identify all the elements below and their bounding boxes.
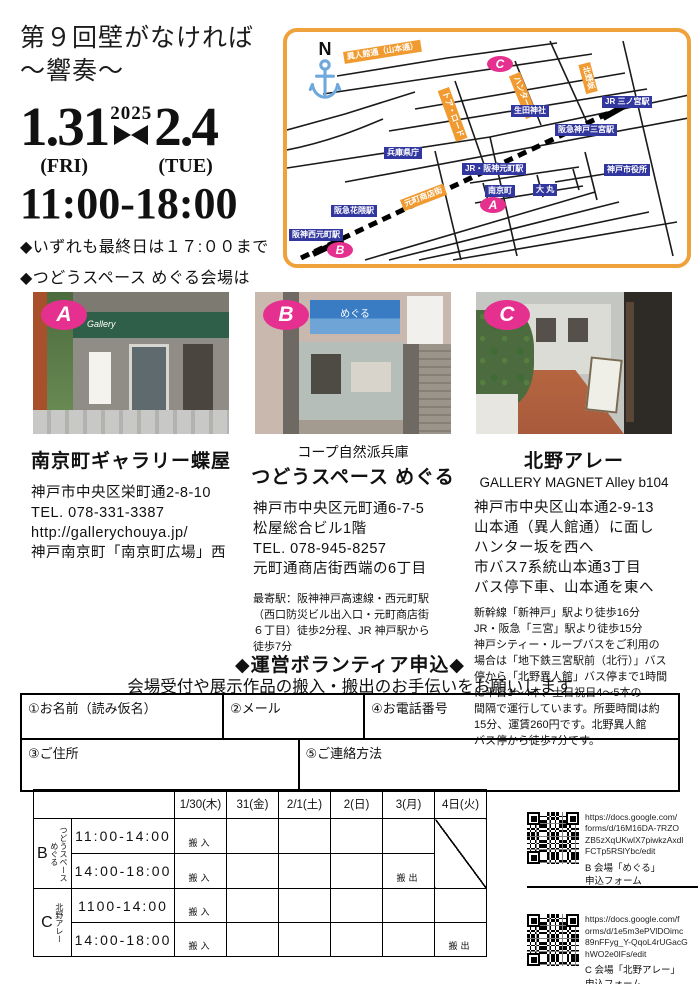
venue-photo-c: C [476,292,672,434]
qr-b-url-line: forms/d/16M16DA-7RZO [585,823,683,834]
schedule-cell [331,819,383,854]
schedule-cell: 搬出 [383,854,435,889]
schedule-cell [227,819,279,854]
map-label-ikuta-shrine: 生田神社 [511,105,549,117]
schedule-cell [331,854,383,889]
form-field-contact[interactable]: ⑤ご連絡方法 [298,740,678,790]
timeslot: 11:00-14:00 [72,819,175,854]
flyer-page: 第９回壁がなければ ～響奏～ 1.31 (FRI) 2025 2.4 (TUE)… [0,0,700,984]
date-start-weekday: (FRI) [20,155,108,178]
photo-c-sign-board [585,356,622,413]
bowtie-icon [114,125,148,145]
schedule-date: 2/1(土) [279,790,331,819]
venue-c-address-line: 山本通（異人館通）に面し [474,518,680,538]
title-block: 第９回壁がなければ ～響奏～ 1.31 (FRI) 2025 2.4 (TUE)… [20,22,278,314]
schedule-row-b1: B つどうスペースめぐる 11:00-14:00 搬入 [34,819,487,854]
venue-b-tel: TEL. 078-945-8257 [253,539,459,559]
venue-a-tel: TEL. 078-331-3387 [31,503,237,523]
schedule-date: 1/30(木) [175,790,227,819]
qr-c-caption-line: 申込フォーム [585,978,688,984]
venue-c-note-line: JR・阪急「三宮」駅より徒歩15分 [474,622,680,638]
row-label-letter-c: C [41,914,53,932]
venue-b-note-line: ６丁目）徒歩2分程、JR 神戸駅から [253,624,459,640]
venue-photo-a: Gallery A [33,292,229,434]
venue-b-name: つどうスペース めぐる [247,462,459,489]
map-label-hanshin-nishimotomachi: 阪神西元町駅 [289,229,343,241]
venue-b-row-label: B つどうスペースめぐる [34,819,72,889]
timeslot: 1100-14:00 [72,889,175,923]
map-label-hyogo-kencho: 兵庫県庁 [384,147,422,159]
row-label-vtext: めぐる [50,826,59,882]
date-end-weekday: (TUE) [154,155,217,178]
photo-b-shutter [419,344,451,434]
venue-c-address-line: 市バス7系統山本通3丁目 [474,558,680,578]
photo-b-step [299,420,403,434]
venue-b-address-line: 神戸市中央区元町通6-7-5 [253,499,459,519]
venue-c-address-line: 神戸市中央区山本通2-9-13 [474,498,680,518]
schedule-row-b2: 14:00-18:00 搬入 搬出 [34,854,487,889]
qr-b-caption-line: B 会場「めぐる」 [585,862,683,875]
event-title-line2: ～響奏～ [20,55,278,88]
schedule-cell-slash [435,819,487,889]
qr-b-url-line: FCTp5RSlYbc/edit [585,846,683,857]
photo-b-town-sign [407,296,443,344]
schedule-cell: 搬入 [175,819,227,854]
qr-divider-line [527,886,698,888]
qr-finder [527,851,540,864]
map-label-hankyu-hanakuma: 阪急花隈駅 [331,205,377,217]
qr-code-b-venue [527,812,579,864]
venue-c-name: 北野アレー [468,446,680,473]
date-end-block: 2.4 (TUE) [154,101,217,178]
schedule-cell [383,819,435,854]
form-field-email[interactable]: ②メール [222,695,363,738]
access-map: N 異人館通（山本通） ハンター坂 北野坂 トア・ロード 元町商店街 JR 三ノ… [283,28,691,268]
map-label-kobe-cityhall: 神戸市役所 [604,164,650,176]
date-start: 1.31 [20,96,108,157]
qr-column: https://docs.google.com/ forms/d/16M16DA… [527,812,699,984]
event-dates: 1.31 (FRI) 2025 2.4 (TUE) [20,101,278,178]
photo-b-sign-text: めぐる [340,309,370,320]
venue-photo-b: めぐる B [255,292,451,434]
map-label-jr-hanshin-motomachi: JR・阪神元町駅 [462,163,526,175]
schedule-date: 2(日) [331,790,383,819]
venue-c-row-label: C 北野アレー [34,889,72,957]
map-label-hankyu-kobe-sannomiya: 阪急神戸三宮駅 [555,124,617,136]
photo-a-side-opening [183,344,213,410]
event-hours: 11:00-18:00 [20,182,278,226]
form-field-address[interactable]: ③ご住所 [22,740,298,790]
map-marker-b: B [327,242,353,258]
event-title-line1: 第９回壁がなければ [20,22,278,55]
timeslot: 14:00-18:00 [72,854,175,889]
venue-c-note-line: 新幹線「新神戸」駅より徒歩16分 [474,606,680,622]
schedule-cell [227,854,279,889]
venue-b-note-line: （西口防災ビル出入口・元町商店街 [253,608,459,624]
form-row-1: ①お名前（読み仮名） ②メール ④お電話番号 [22,695,678,738]
schedule-cell: 搬入 [175,923,227,957]
qr-c-caption: C 会場「北野アレー」 申込フォーム [585,964,688,984]
note-meguru-1: ◆つどうスペース めぐる会場は [20,264,278,288]
venue-a-badge: A [41,300,87,330]
venue-b: めぐる B コープ自然派兵庫 つどうスペース めぐる 神戸市中央区元町通6-7-… [247,292,459,656]
schedule-cell [279,854,331,889]
photo-a-awning: Gallery [73,312,229,338]
photo-a-pavement [33,410,229,434]
map-label-jr-sannomiya: JR 三ノ宮駅 [602,96,652,108]
venue-c-address: 神戸市中央区山本通2-9-13 山本通（異人館通）に面し ハンター坂を西へ 市バ… [468,498,680,598]
qr-c-url-line: orms/d/1e5m3ePVlDOimc [585,926,688,937]
venue-b-address: 神戸市中央区元町通6-7-5 松屋総合ビル1階 TEL. 078-945-825… [247,499,459,579]
schedule-cell [383,923,435,957]
venue-b-access-note: 最寄駅：阪神神戸高速線・西元町駅 （西口防災ビル出入口・元町商店街 ６丁目）徒歩… [247,592,459,656]
schedule-cell [331,889,383,923]
venue-a-address-line: 神戸市中央区栄町通2-8-10 [31,483,237,503]
qr-c-url-line: hWO2e0IFs/edit [585,949,688,960]
venue-a: Gallery A 南京町ギャラリー蝶屋 神戸市中央区栄町通2-8-10 TEL… [25,292,237,563]
schedule-cell [435,889,487,923]
photo-c-wall-frame [626,302,634,422]
venue-a-address-line: 神戸南京町「南京町広場」西 [31,543,237,563]
venue-b-address-line: 松屋総合ビル1階 [253,519,459,539]
qr-finder [527,914,540,927]
row-label-vtext: つどうスペース [59,826,68,882]
qr-c-url-line: https://docs.google.com/f [585,914,688,925]
qr-c-url-line: 89nFFyg_Y-QqoL4rUGacG [585,937,688,948]
event-year: 2025 [110,103,152,125]
venue-b-address-line: 元町通商店街西端の6丁目 [253,559,459,579]
qr-finder [527,812,540,825]
form-field-name[interactable]: ①お名前（読み仮名） [22,695,222,738]
qr-finder [527,953,540,966]
map-label-daimaru: 大 丸 [533,184,557,196]
qr-b-url-line: ZB5zXqUKwlX7piwkzAxdl [585,835,683,846]
schedule-row-c1: C 北野アレー 1100-14:00 搬入 [34,889,487,923]
form-field-phone[interactable]: ④お電話番号 [363,695,678,738]
schedule-cell [279,923,331,957]
qr-b-caption: B 会場「めぐる」 申込フォーム [585,862,683,889]
compass-n-label: N [303,40,347,58]
schedule-date: 31(金) [227,790,279,819]
qr-b-url-line: https://docs.google.com/ [585,812,683,823]
schedule-date: 3(月) [383,790,435,819]
schedule-cell [383,889,435,923]
photo-b-display [311,354,341,394]
photo-b-sign: めぐる [310,300,400,334]
photo-a-awning-sign: Gallery [87,319,116,329]
venue-b-org: コープ自然派兵庫 [247,442,459,462]
schedule-row-c2: 14:00-18:00 搬入 搬出 [34,923,487,957]
qr-finder [566,914,579,927]
photo-a-upper-floor [73,292,229,312]
venue-a-name: 南京町ギャラリー蝶屋 [25,446,237,473]
compass: N [303,40,347,105]
map-marker-a: A [480,197,506,213]
venue-a-address: 神戸市中央区栄町通2-8-10 TEL. 078-331-3387 http:/… [25,483,237,563]
venue-c-badge: C [484,300,530,330]
schedule-cell [279,819,331,854]
qr-c-url: https://docs.google.com/f orms/d/1e5m3eP… [585,914,688,960]
venue-c-address-line: バス停下車、山本通を東へ [474,578,680,598]
schedule-header-row: 1/30(木) 31(金) 2/1(土) 2(日) 3(月) 4日(火) [34,790,487,819]
note-final-day: ◆いずれも最終日は１７:００まで [20,233,278,257]
schedule-cell: 搬出 [435,923,487,957]
volunteer-form: ①お名前（読み仮名） ②メール ④お電話番号 ③ご住所 ⑤ご連絡方法 [20,693,680,792]
schedule-table: 1/30(木) 31(金) 2/1(土) 2(日) 3(月) 4日(火) B つ… [33,789,487,957]
venue-b-note-line: 最寄駅：阪神神戸高速線・西元町駅 [253,592,459,608]
photo-c-window [536,318,556,342]
schedule-cell [227,889,279,923]
date-end: 2.4 [154,96,217,157]
schedule-cell: 搬入 [175,889,227,923]
schedule-cell [227,923,279,957]
date-start-block: 1.31 (FRI) [20,101,108,178]
form-row-2: ③ご住所 ⑤ご連絡方法 [22,738,678,790]
photo-b-table [351,362,391,392]
qr-b-url: https://docs.google.com/ forms/d/16M16DA… [585,812,683,858]
photo-a-signboard [89,352,111,404]
venue-c-gallery-name: GALLERY MAGNET Alley b104 [468,475,680,490]
date-middle-block: 2025 [110,103,152,145]
photo-a-door [129,344,169,416]
map-marker-c: C [487,56,513,72]
map-label-nankinmachi: 南京町 [485,185,515,197]
schedule-cell: 搬入 [175,854,227,889]
qr-block-c: https://docs.google.com/f orms/d/1e5m3eP… [527,914,699,984]
qr-c-caption-line: C 会場「北野アレー」 [585,964,688,977]
schedule-cell [279,889,331,923]
row-label-vtext: 北野アレー [55,903,64,943]
timeslot: 14:00-18:00 [72,923,175,957]
qr-finder [566,812,579,825]
schedule-cell [331,923,383,957]
anchor-icon [308,58,342,100]
photo-c-window [568,318,588,342]
venue-b-badge: B [263,300,309,330]
row-label-letter-b: B [37,845,48,863]
photo-b-pillar-right [403,344,419,434]
photo-c-planter [476,394,518,434]
venue-a-url: http://gallerychouya.jp/ [31,523,237,543]
qr-block-b: https://docs.google.com/ forms/d/16M16DA… [527,812,699,888]
venue-c-address-line: ハンター坂を西へ [474,538,680,558]
schedule-date: 4日(火) [435,790,487,819]
qr-code-c-venue [527,914,579,966]
